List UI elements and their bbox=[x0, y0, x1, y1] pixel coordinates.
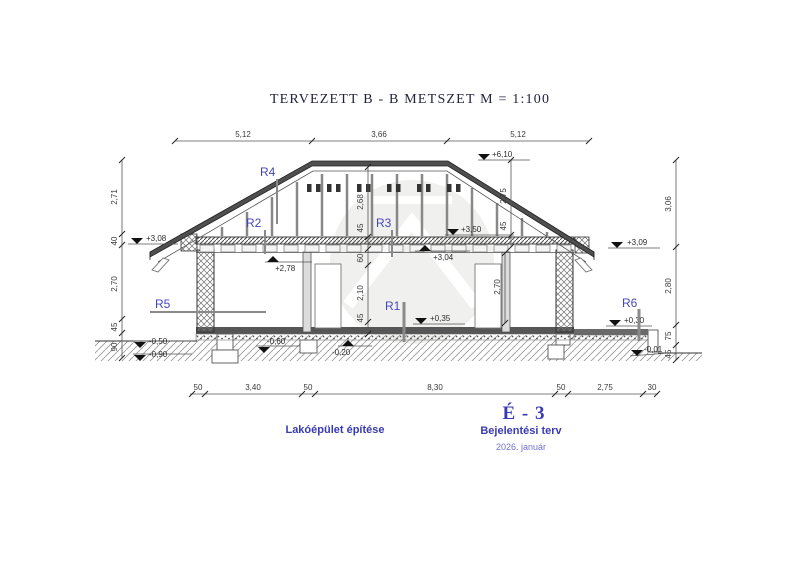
svg-text:2,80: 2,80 bbox=[664, 278, 673, 294]
svg-text:2,75: 2,75 bbox=[597, 383, 613, 392]
svg-text:2,75: 2,75 bbox=[499, 188, 508, 204]
svg-text:-0,90: -0,90 bbox=[149, 350, 168, 359]
svg-text:90: 90 bbox=[110, 342, 119, 351]
dim-chain-right: 3,06 2,80 75 45 bbox=[664, 157, 679, 363]
label-r4: R4 bbox=[260, 165, 276, 179]
plan-date: 2026. január bbox=[496, 442, 546, 452]
drawing-title: TERVEZETT B - B METSZET M = 1:100 bbox=[270, 92, 550, 107]
svg-text:2,68: 2,68 bbox=[356, 194, 365, 210]
svg-text:2,71: 2,71 bbox=[110, 189, 119, 205]
svg-text:50: 50 bbox=[194, 383, 203, 392]
level-eaves-right: +3,09 bbox=[608, 238, 660, 248]
svg-text:+3,09: +3,09 bbox=[627, 238, 648, 247]
sheet-number: É - 3 bbox=[503, 402, 546, 424]
svg-text:60: 60 bbox=[356, 253, 365, 262]
svg-text:-0,20: -0,20 bbox=[332, 348, 351, 357]
label-r6: R6 bbox=[622, 296, 638, 310]
drawing-page: TERVEZETT B - B METSZET M = 1:100 bbox=[0, 0, 800, 566]
level-soffit-left: +2,78 bbox=[267, 256, 296, 273]
level-ridge: +6,10 bbox=[478, 150, 530, 160]
dim-chain-bottom: 50 3,40 50 8,30 50 2,75 30 bbox=[189, 383, 660, 397]
svg-text:45: 45 bbox=[110, 322, 119, 331]
svg-text:5,12: 5,12 bbox=[235, 130, 251, 139]
svg-text:50: 50 bbox=[304, 383, 313, 392]
svg-text:3,66: 3,66 bbox=[371, 130, 387, 139]
label-r1: R1 bbox=[385, 299, 401, 313]
floor-slab bbox=[196, 327, 648, 340]
svg-text:2,10: 2,10 bbox=[356, 285, 365, 301]
dim-chain-left: 2,71 40 2,70 45 90 bbox=[110, 157, 125, 361]
door-opening-left bbox=[315, 264, 341, 328]
label-r2: R2 bbox=[246, 216, 262, 230]
svg-text:2,70: 2,70 bbox=[493, 279, 502, 295]
label-r5: R5 bbox=[155, 297, 171, 311]
svg-text:-0,60: -0,60 bbox=[267, 337, 286, 346]
footer-block: Lakóépület építése É - 3 Bejelentési ter… bbox=[285, 402, 562, 452]
svg-text:50: 50 bbox=[557, 383, 566, 392]
svg-text:2,70: 2,70 bbox=[110, 276, 119, 292]
svg-text:+0,30: +0,30 bbox=[624, 316, 645, 325]
svg-text:3,40: 3,40 bbox=[245, 383, 261, 392]
dim-chain-top: 5,12 3,66 5,12 bbox=[172, 130, 592, 144]
plan-type: Bejelentési terv bbox=[480, 425, 562, 437]
svg-text:45: 45 bbox=[664, 349, 673, 358]
logo-watermark bbox=[330, 180, 494, 344]
svg-text:40: 40 bbox=[110, 236, 119, 245]
project-title: Lakóépület építése bbox=[285, 424, 384, 436]
svg-text:3,06: 3,06 bbox=[664, 196, 673, 212]
level-terrace: +0,30 bbox=[606, 316, 652, 326]
svg-text:-0,50: -0,50 bbox=[149, 337, 168, 346]
svg-text:75: 75 bbox=[664, 331, 673, 340]
label-r3: R3 bbox=[376, 216, 392, 230]
svg-text:+3,50: +3,50 bbox=[461, 225, 482, 234]
svg-text:30: 30 bbox=[648, 383, 657, 392]
svg-text:+3,08: +3,08 bbox=[146, 234, 167, 243]
svg-text:+6,10: +6,10 bbox=[492, 150, 513, 159]
svg-text:8,30: 8,30 bbox=[427, 383, 443, 392]
svg-text:45: 45 bbox=[499, 221, 508, 230]
svg-text:45: 45 bbox=[356, 313, 365, 322]
svg-text:+2,78: +2,78 bbox=[275, 264, 296, 273]
svg-text:-0,01: -0,01 bbox=[644, 345, 663, 354]
door-opening-right bbox=[475, 264, 501, 328]
svg-text:45: 45 bbox=[356, 223, 365, 232]
svg-text:+3,04: +3,04 bbox=[433, 253, 454, 262]
svg-text:+0,35: +0,35 bbox=[430, 314, 451, 323]
svg-text:5,12: 5,12 bbox=[510, 130, 526, 139]
section-drawing-svg: TERVEZETT B - B METSZET M = 1:100 bbox=[0, 0, 800, 566]
